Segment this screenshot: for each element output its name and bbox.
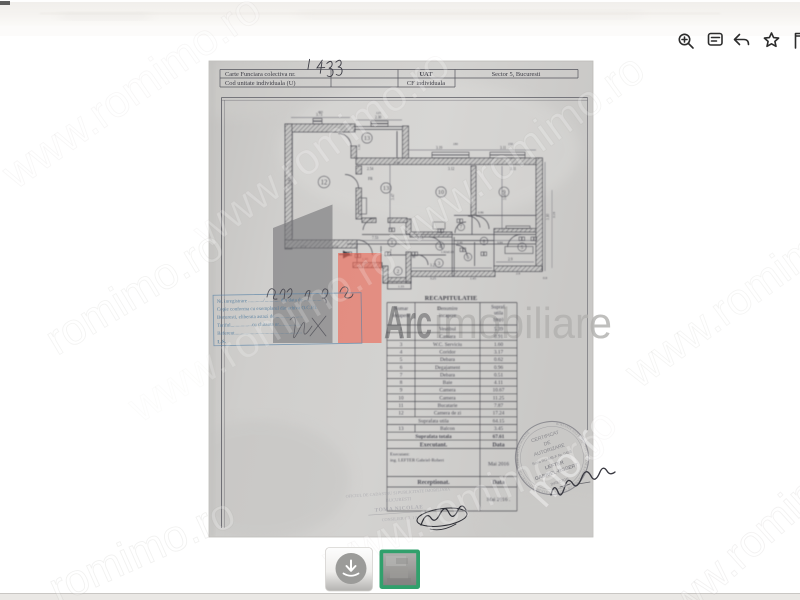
svg-text:Camera: Camera: [439, 388, 456, 394]
svg-text:Carte Funciara colectiva nr.: Carte Funciara colectiva nr.: [225, 71, 296, 78]
svg-text:Bucatarie: Bucatarie: [438, 403, 459, 409]
svg-text:Cod unitate individuala (U): Cod unitate individuala (U): [225, 80, 295, 87]
svg-text:Camera de zi: Camera de zi: [434, 411, 462, 417]
svg-text:11.25: 11.25: [493, 395, 505, 401]
svg-text:1.45: 1.45: [470, 277, 476, 281]
svg-text:Executant:: Executant:: [390, 452, 410, 457]
svg-text:ing. LEFTER Gabriel-Robert: ing. LEFTER Gabriel-Robert: [390, 458, 445, 463]
svg-text:Camara: Camara: [439, 334, 456, 340]
svg-text:6: 6: [400, 365, 403, 371]
svg-text:5.39: 5.39: [494, 327, 503, 333]
svg-text:Camera: Camera: [439, 395, 456, 401]
svg-text:10.67: 10.67: [493, 388, 505, 394]
svg-text:3.10: 3.10: [546, 214, 550, 220]
svg-text:13: 13: [383, 185, 389, 192]
svg-text:4.11: 4.11: [494, 380, 503, 386]
svg-text:64.15: 64.15: [493, 418, 505, 424]
svg-text:3.25: 3.25: [430, 264, 436, 268]
svg-text:5: 5: [400, 357, 403, 363]
svg-text:4: 4: [400, 350, 403, 356]
svg-text:0.91: 0.91: [494, 334, 503, 340]
svg-text:3: 3: [400, 342, 403, 348]
svg-text:3: 3: [438, 261, 441, 267]
svg-text:2.9: 2.9: [508, 258, 513, 262]
svg-text:180: 180: [453, 142, 458, 146]
svg-text:Supraf.: Supraf.: [491, 304, 506, 311]
svg-text:FR: FR: [368, 177, 373, 181]
svg-text:Denumire: Denumire: [437, 306, 458, 312]
svg-text:13: 13: [398, 426, 404, 432]
svg-text:17.24: 17.24: [493, 411, 505, 417]
svg-text:11: 11: [399, 403, 404, 409]
svg-text:incapere: incapere: [439, 313, 457, 319]
svg-text:9: 9: [400, 388, 403, 394]
svg-text:495: 495: [318, 110, 323, 114]
svg-text:3.45: 3.45: [494, 426, 503, 432]
svg-text:0.62: 0.62: [494, 357, 503, 363]
svg-text:0.46: 0.46: [457, 241, 463, 245]
svg-text:67.61: 67.61: [493, 434, 505, 440]
svg-text:1: 1: [400, 327, 403, 333]
svg-text:2: 2: [400, 334, 403, 340]
svg-text:Sector 5, Bucuresti: Sector 5, Bucuresti: [492, 71, 541, 78]
svg-text:3.18: 3.18: [552, 212, 556, 218]
svg-text:Suprafata totala: Suprafata totala: [415, 434, 452, 440]
svg-text:0.46: 0.46: [394, 161, 400, 165]
svg-text:0.9: 0.9: [543, 276, 548, 280]
svg-text:incapere: incapere: [392, 313, 410, 319]
svg-text:7.87: 7.87: [494, 403, 503, 409]
svg-text:0.96: 0.96: [494, 365, 503, 371]
svg-text:3.25: 3.25: [430, 277, 436, 281]
svg-text:3.17: 3.17: [494, 350, 503, 356]
svg-text:Suprafata utila: Suprafata utila: [418, 417, 449, 424]
svg-text:Coridor: Coridor: [439, 350, 455, 356]
svg-text:2.9: 2.9: [516, 272, 521, 276]
svg-text:2.54: 2.54: [367, 167, 373, 171]
svg-text:Baie: Baie: [443, 380, 453, 386]
svg-text:3.19: 3.19: [436, 146, 442, 150]
svg-text:Data: Data: [492, 442, 504, 448]
svg-text:Debara: Debara: [440, 372, 456, 378]
svg-text:3.47: 3.47: [391, 194, 395, 200]
svg-text:utila: utila: [494, 311, 504, 317]
svg-text:10: 10: [398, 395, 404, 401]
svg-text:0.86: 0.86: [478, 211, 484, 215]
svg-text:Degajament: Degajament: [435, 365, 461, 371]
svg-text:W.C. Serviciu: W.C. Serviciu: [433, 342, 462, 348]
svg-text:5: 5: [521, 245, 524, 251]
svg-text:Numar: Numar: [394, 306, 408, 312]
svg-text:1.10: 1.10: [332, 245, 338, 249]
svg-text:RECAPITULATIE: RECAPITULATIE: [425, 295, 477, 302]
svg-text:0.51: 0.51: [494, 372, 503, 378]
svg-text:7: 7: [400, 372, 403, 378]
svg-text:Debara: Debara: [440, 357, 456, 363]
svg-text:1.60: 1.60: [494, 342, 503, 348]
svg-text:12: 12: [398, 411, 404, 417]
svg-text:(mp): (mp): [494, 316, 504, 323]
svg-text:3.94: 3.94: [497, 241, 503, 245]
svg-text:3.40: 3.40: [503, 194, 507, 200]
svg-text:1.33: 1.33: [398, 285, 404, 289]
svg-text:8: 8: [400, 380, 403, 386]
svg-text:12: 12: [321, 179, 328, 186]
svg-text:imobiliare: imobiliare: [434, 299, 612, 348]
svg-text:Balcon: Balcon: [440, 426, 455, 432]
svg-text:Vestibul: Vestibul: [439, 327, 457, 333]
svg-text:1.92x0.63: 1.92x0.63: [441, 250, 454, 254]
svg-text:Executant.: Executant.: [420, 442, 448, 448]
